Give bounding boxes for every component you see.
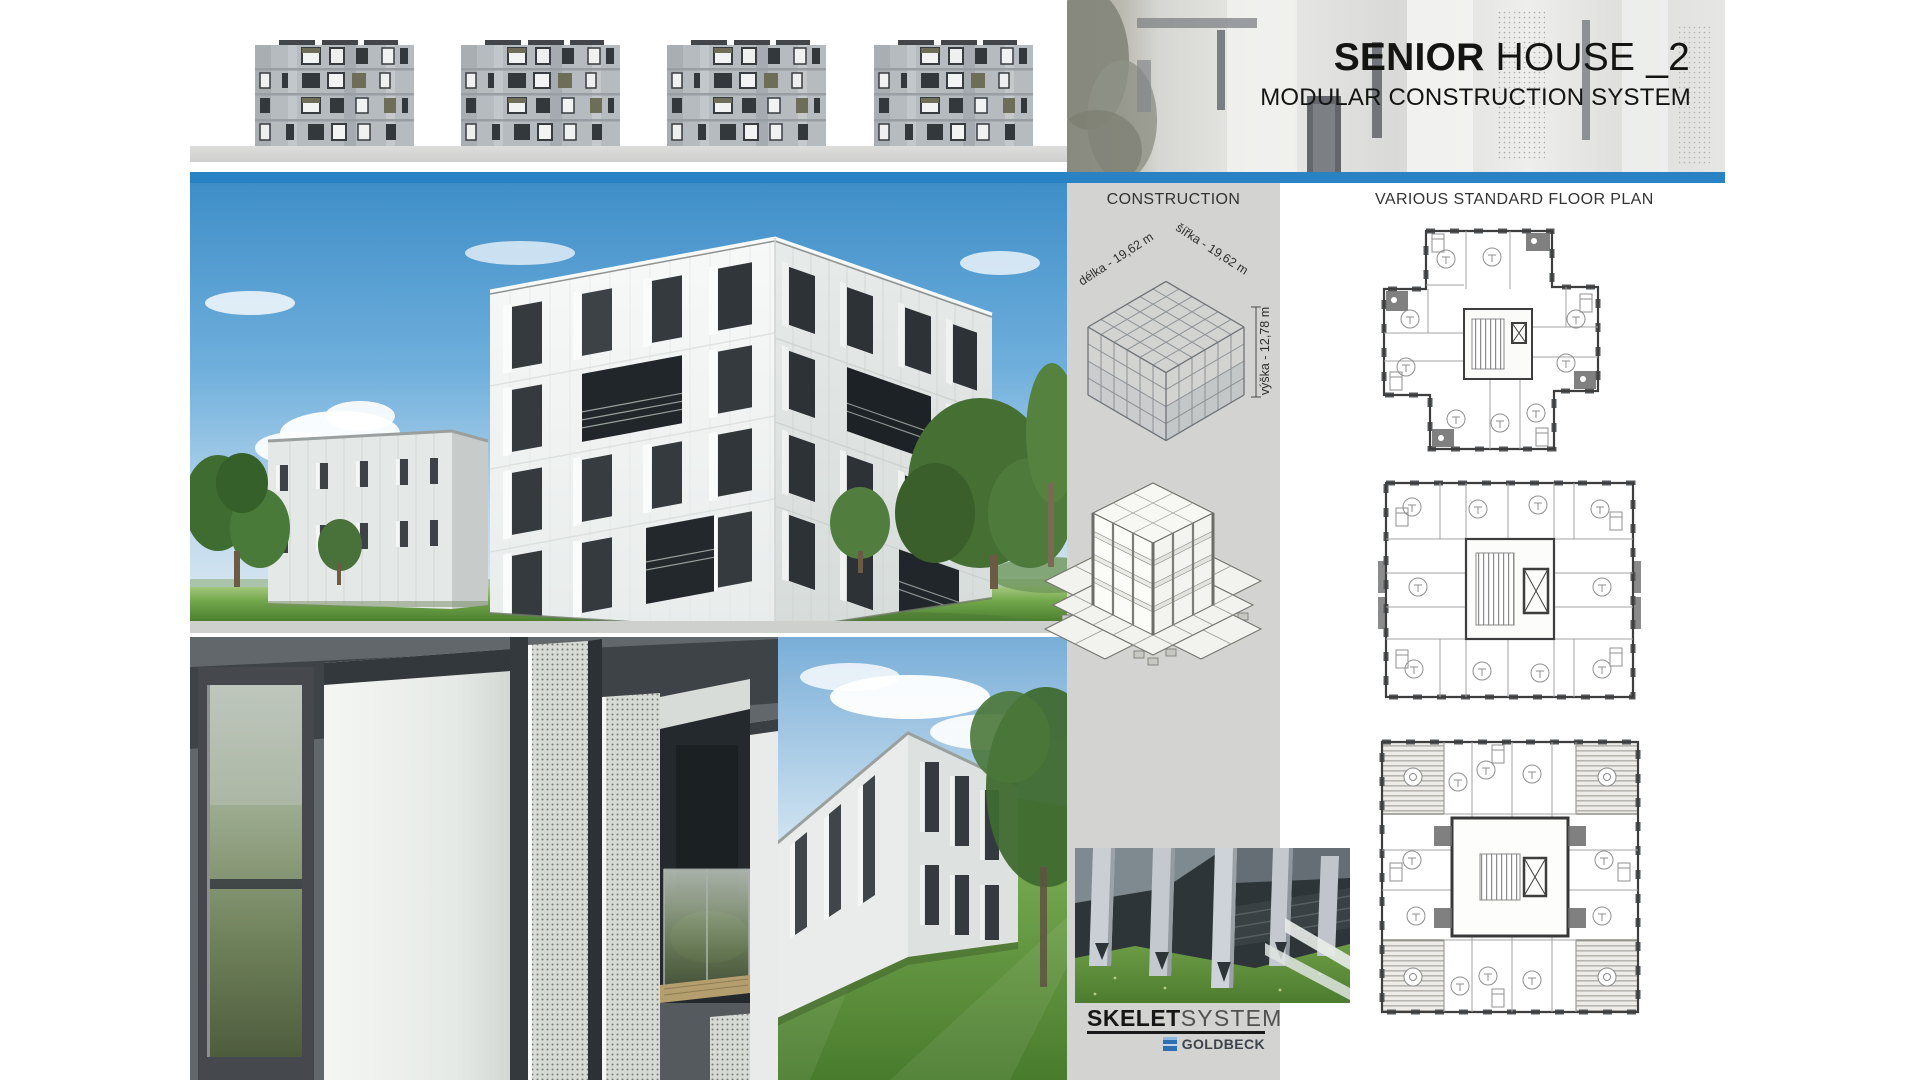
page-subtitle: MODULAR CONSTRUCTION SYSTEM <box>1260 84 1691 112</box>
dimension-height-label: výška - 12,78 m <box>1258 291 1272 411</box>
partner-logo: GOLDBECK <box>1087 1036 1265 1052</box>
render-facade-detail <box>190 637 1067 1080</box>
accent-bar <box>190 172 1725 183</box>
construction-heading: CONSTRUCTION <box>1067 191 1280 209</box>
module-detail-photo <box>1075 848 1350 1003</box>
render-main-exterior <box>190 183 1067 633</box>
elevation-thumbnail-1 <box>252 40 417 146</box>
page-title-bold: SENIOR <box>1334 36 1485 79</box>
floor-plan-1 <box>1380 227 1602 453</box>
elevation-thumbnail-2 <box>458 40 623 146</box>
floor-plan-3 <box>1376 730 1644 1024</box>
page-title: SENIOR HOUSE _2 <box>1334 36 1690 80</box>
brand-logo-light: SYSTEM <box>1181 1005 1283 1031</box>
floor-plans-heading: VARIOUS STANDARD FLOOR PLAN <box>1375 191 1654 209</box>
brand-logo: SKELETSYSTEM <box>1087 1007 1265 1034</box>
elevation-ground-strip <box>190 146 1067 162</box>
construction-wireframe-diagram <box>1070 215 1275 450</box>
partner-logo-text: GOLDBECK <box>1182 1036 1265 1052</box>
goldbeck-icon <box>1163 1037 1177 1051</box>
elevation-thumbnail-4 <box>871 40 1036 146</box>
page-title-rest: HOUSE _2 <box>1484 36 1690 79</box>
presentation-board: SENIOR HOUSE _2 MODULAR CONSTRUCTION SYS… <box>0 0 1920 1080</box>
floor-plan-2 <box>1378 477 1641 703</box>
elevation-thumbnail-3 <box>664 40 829 146</box>
brand-logo-bold: SKELET <box>1087 1005 1181 1031</box>
construction-skeleton-diagram <box>1025 455 1295 690</box>
